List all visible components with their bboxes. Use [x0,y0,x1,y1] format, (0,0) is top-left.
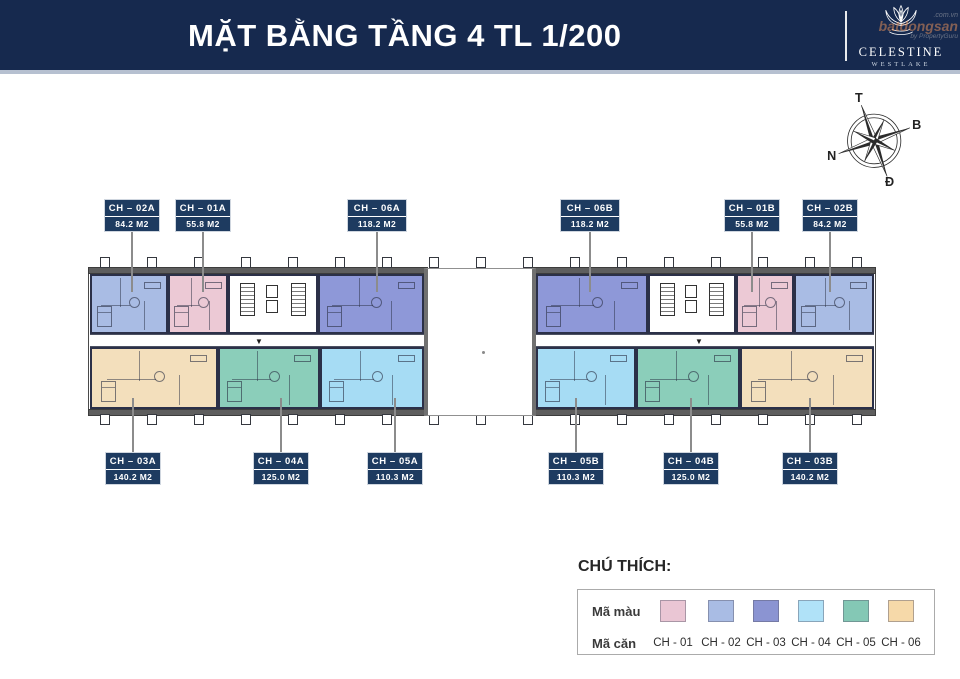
room-divider [391,301,392,330]
service-core [228,274,318,334]
apartment-unit-ch-06a [318,274,424,334]
column-tick [429,257,439,268]
room-divider [289,375,290,405]
room-divider [144,301,145,330]
table-furniture [586,371,597,382]
column-tick [194,414,204,425]
column-tick [617,414,627,425]
room-divider [139,351,140,381]
unit-area: 118.2 M2 [561,217,619,231]
column-tick [100,414,110,425]
column-tick [711,257,721,268]
label-leader-line [829,229,831,292]
service-core [648,274,736,334]
apartment-unit-ch-06b [536,274,648,334]
bed-pillow-line [752,387,765,388]
unit-area: 84.2 M2 [105,217,159,231]
column-tick [335,414,345,425]
unit-label-bottom: CH – 05A110.3 M2 [367,452,423,485]
unit-area: 110.3 M2 [368,470,422,484]
column-tick [664,414,674,425]
unit-code: CH – 05B [549,453,603,470]
compass-label-west: T [855,91,863,105]
unit-label-top: CH – 02A84.2 M2 [104,199,160,232]
sofa-furniture [190,355,207,362]
unit-label-bottom: CH – 03A140.2 M2 [105,452,161,485]
header-accent-strip [0,70,960,74]
unit-label-bottom: CH – 04A125.0 M2 [253,452,309,485]
column-tick [852,257,862,268]
room-divider [359,278,360,307]
room-divider [776,301,777,330]
column-tick [100,257,110,268]
column-tick [288,414,298,425]
bed-pillow-line [102,387,115,388]
label-leader-line [589,229,591,292]
compass-rose: T B N Đ [820,90,932,197]
apartment-unit-ch-02a [90,274,168,334]
bed-furniture [645,381,660,402]
unit-code: CH – 02A [105,200,159,217]
unit-code: CH – 06B [561,200,619,217]
bed-furniture [174,306,189,327]
section-marker: ▼ [695,338,703,346]
column-tick [523,257,533,268]
label-leader-line [280,398,282,452]
room-divider [392,375,393,405]
balcony-band [532,267,876,274]
room-divider [257,351,258,381]
column-tick [288,257,298,268]
unit-area: 140.2 M2 [783,470,837,484]
elevator-shaft [266,285,278,298]
table-furniture [269,371,280,382]
column-tick [382,414,392,425]
bed-pillow-line [547,312,560,313]
stairs-symbol [660,283,675,316]
elevator-shaft [685,300,697,313]
bed-furniture [801,306,816,327]
legend-row-code-label: Mã căn [592,636,636,651]
legend-unit-code: CH - 01 [650,637,696,649]
legend-color-swatch [660,600,686,622]
bed-furniture [101,381,116,402]
sofa-furniture [398,355,415,362]
bed-furniture [329,381,344,402]
compass-label-north: B [912,118,921,132]
legend-color-swatch [798,600,824,622]
room-divider [676,351,677,381]
column-tick [664,257,674,268]
legend-unit-code: CH - 03 [743,637,789,649]
elevator-shaft [685,285,697,298]
bed-furniture [742,306,757,327]
column-tick [241,414,251,425]
brand-logo: CELESTINE WESTLAKE [855,3,947,68]
bed-pillow-line [546,387,559,388]
label-leader-line [394,398,396,452]
table-furniture [129,297,140,308]
room-divider [759,278,760,307]
legend-unit-code: CH - 04 [788,637,834,649]
column-tick [852,414,862,425]
table-furniture [765,297,776,308]
void-mark [482,351,485,354]
apartment-unit-ch-05a [320,347,424,409]
bed-pillow-line [98,312,111,313]
balcony-band [88,409,428,416]
sofa-furniture [610,355,627,362]
column-tick [476,257,486,268]
column-tick [382,257,392,268]
elevator-shaft [266,300,278,313]
room-divider [825,278,826,307]
sofa-furniture [144,282,161,289]
bed-pillow-line [646,387,659,388]
floorplan-flyer: MẶT BẰNG TẦNG 4 TL 1/200 CELESTINE WESTL… [0,0,960,679]
brand-subtitle: WESTLAKE [855,61,947,68]
column-tick [617,257,627,268]
brand-name: CELESTINE [855,45,947,60]
column-tick [805,257,815,268]
unit-label-bottom: CH – 04B125.0 M2 [663,452,719,485]
legend-title: CHÚ THÍCH: [578,558,671,576]
bed-furniture [546,306,561,327]
stairs-symbol [291,283,306,316]
label-leader-line [575,398,577,452]
label-leader-line [809,398,811,452]
room-divider [191,278,192,307]
section-marker: ▼ [255,338,263,346]
lotus-icon [879,3,923,39]
sofa-furniture [205,282,222,289]
room-divider [360,351,361,381]
compass-star [837,104,911,178]
room-divider [574,351,575,381]
central-void [424,268,536,416]
legend-color-swatch [843,600,869,622]
bed-furniture [97,306,112,327]
apartment-unit-ch-03b [740,347,874,409]
unit-area: 55.8 M2 [725,217,779,231]
sofa-furniture [714,355,731,362]
column-tick [241,257,251,268]
column-tick [147,257,157,268]
room-divider [708,375,709,405]
room-divider [791,351,792,381]
unit-area: 110.3 M2 [549,470,603,484]
label-leader-line [751,229,753,292]
unit-code: CH – 04A [254,453,308,470]
column-tick [335,257,345,268]
unit-label-top: CH – 01B55.8 M2 [724,199,780,232]
unit-label-top: CH – 06B118.2 M2 [560,199,620,232]
page-title: MẶT BẰNG TẦNG 4 TL 1/200 [188,0,621,70]
unit-label-bottom: CH – 03B140.2 M2 [782,452,838,485]
column-tick [570,257,580,268]
unit-area: 125.0 M2 [254,470,308,484]
bed-pillow-line [175,312,188,313]
label-leader-line [132,398,134,452]
legend-unit-code: CH - 05 [833,637,879,649]
apartment-unit-ch-04a [218,347,320,409]
unit-area: 118.2 M2 [348,217,406,231]
label-leader-line [376,229,378,292]
bed-pillow-line [328,312,341,313]
unit-code: CH – 03B [783,453,837,470]
sofa-furniture [398,282,415,289]
label-leader-line [131,229,133,292]
table-furniture [372,371,383,382]
label-leader-line [202,229,204,292]
sofa-furniture [846,355,863,362]
header-bar: MẶT BẰNG TẦNG 4 TL 1/200 CELESTINE WESTL… [0,0,960,70]
room-divider [605,375,606,405]
legend-color-swatch [753,600,779,622]
room-divider [614,301,615,330]
table-furniture [154,371,165,382]
table-furniture [834,297,845,308]
sofa-furniture [850,282,867,289]
stairs-symbol [709,283,724,316]
legend-unit-code: CH - 02 [698,637,744,649]
unit-code: CH – 04B [664,453,718,470]
corridor [536,334,874,347]
room-divider [179,375,180,405]
bed-pillow-line [228,387,241,388]
unit-area: 84.2 M2 [803,217,857,231]
room-divider [120,278,121,307]
unit-label-top: CH – 06A118.2 M2 [347,199,407,232]
unit-code: CH – 02B [803,200,857,217]
table-furniture [371,297,382,308]
sofa-furniture [294,355,311,362]
unit-code: CH – 06A [348,200,406,217]
legend-row-color-label: Mã màu [592,604,640,619]
table-furniture [592,297,603,308]
compass-label-east: Đ [885,175,894,189]
sofa-furniture [621,282,638,289]
bed-furniture [327,306,342,327]
unit-area: 140.2 M2 [106,470,160,484]
legend-color-swatch [708,600,734,622]
unit-label-top: CH – 02B84.2 M2 [802,199,858,232]
room-divider [849,301,850,330]
room-divider [579,278,580,307]
apartment-unit-ch-04b [636,347,740,409]
bed-pillow-line [743,312,756,313]
bed-furniture [227,381,242,402]
column-tick [758,414,768,425]
column-tick [147,414,157,425]
stairs-symbol [240,283,255,316]
label-leader-line [690,398,692,452]
balcony-band [532,409,876,416]
bed-furniture [751,381,766,402]
legend-unit-code: CH - 06 [878,637,924,649]
unit-code: CH – 05A [368,453,422,470]
apartment-unit-ch-05b [536,347,636,409]
column-tick [711,414,721,425]
column-tick [758,257,768,268]
unit-area: 55.8 M2 [176,217,230,231]
unit-code: CH – 01A [176,200,230,217]
bed-pillow-line [802,312,815,313]
unit-code: CH – 01B [725,200,779,217]
unit-label-bottom: CH – 05B110.3 M2 [548,452,604,485]
room-divider [209,301,210,330]
legend-color-swatch [888,600,914,622]
table-furniture [198,297,209,308]
table-furniture [688,371,699,382]
table-furniture [807,371,818,382]
compass-label-south: N [827,149,836,163]
apartment-unit-ch-03a [90,347,218,409]
unit-code: CH – 03A [106,453,160,470]
apartment-unit-ch-01a [168,274,228,334]
bed-furniture [545,381,560,402]
room-divider [833,375,834,405]
apartment-unit-ch-02b [794,274,874,334]
unit-area: 125.0 M2 [664,470,718,484]
sofa-furniture [771,282,788,289]
header-divider [845,11,847,61]
apartment-unit-ch-01b [736,274,794,334]
bed-pillow-line [330,387,343,388]
unit-label-top: CH – 01A55.8 M2 [175,199,231,232]
